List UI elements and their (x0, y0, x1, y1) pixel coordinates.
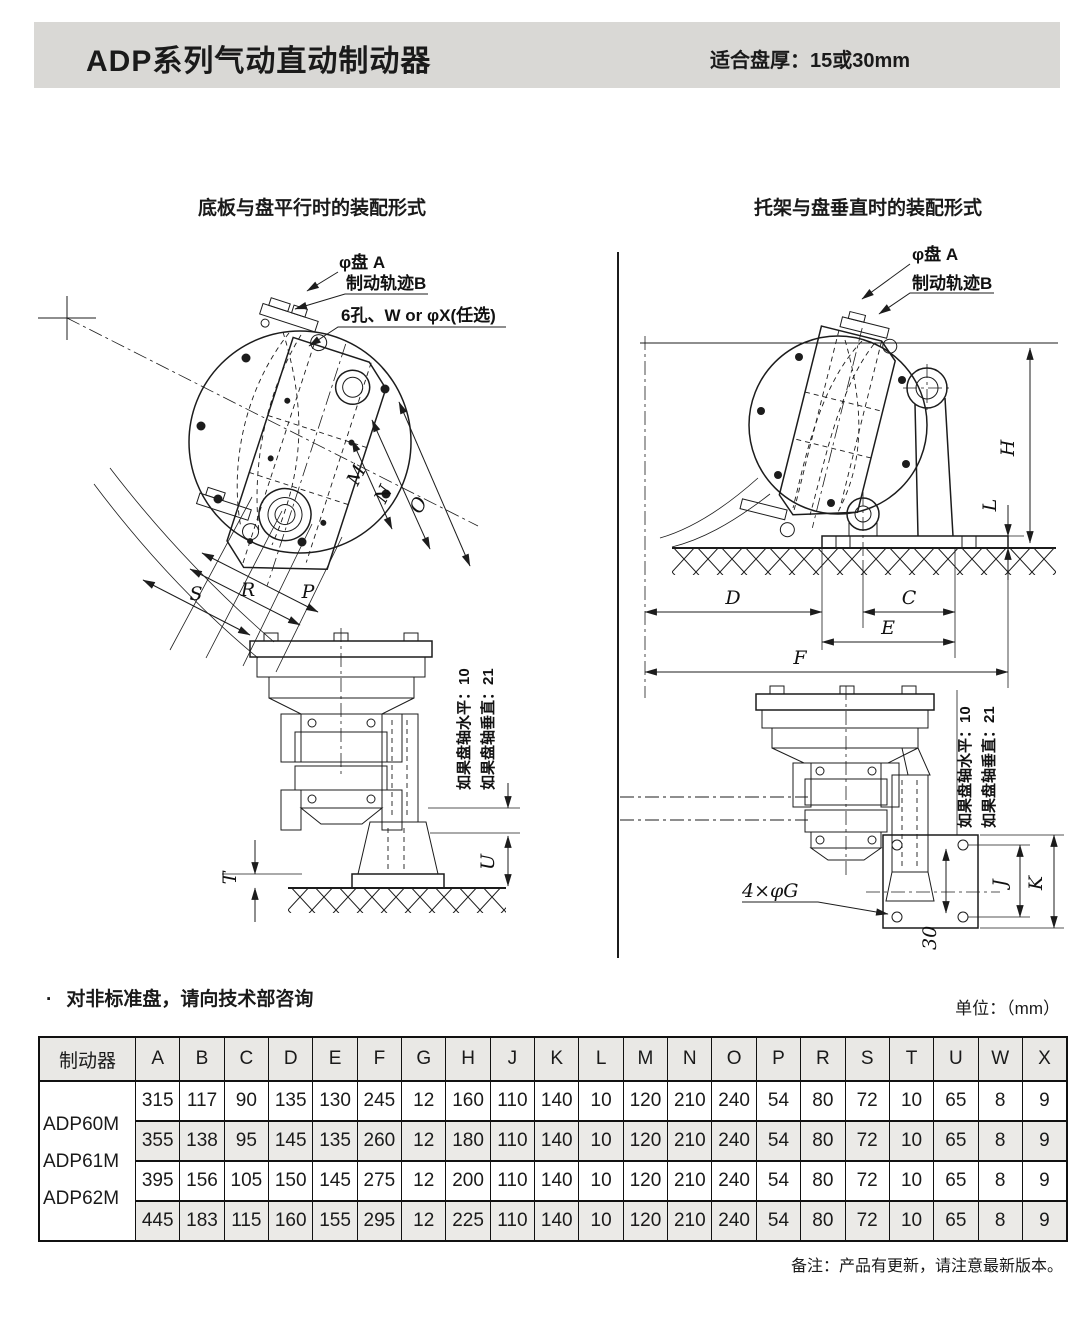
table-col-header: A (136, 1037, 180, 1081)
table-cell: 210 (668, 1201, 712, 1241)
note-axis-vertical-right: 如果盘轴垂直：21 (980, 706, 998, 828)
footer-note: 备注：产品有更新，请注意最新版本。 (791, 1252, 1063, 1276)
table-col-header: R (801, 1037, 845, 1081)
table-row: ADP60MADP61MADP62M3151179013513024512160… (39, 1081, 1067, 1121)
model-name: ADP60M (43, 1106, 135, 1143)
table-cell: 12 (402, 1121, 446, 1161)
table-row: 3951561051501452751220011014010120210240… (39, 1161, 1067, 1201)
table-cell: 160 (446, 1081, 490, 1121)
table-cell: 54 (756, 1121, 800, 1161)
dim-j: J (989, 878, 1011, 891)
table-cell: 180 (446, 1121, 490, 1161)
dim-l: L (979, 499, 1001, 513)
nonstandard-disc-remark: ·对非标准盘，请向技术部咨询 (46, 984, 313, 1011)
table-cell: 200 (446, 1161, 490, 1201)
dim-h: H (997, 439, 1019, 457)
table-row: 3551389514513526012180110140101202102405… (39, 1121, 1067, 1161)
table-cell: 150 (269, 1161, 313, 1201)
table-col-header: L (579, 1037, 623, 1081)
header-bar: ADP系列气动直动制动器 适合盘厚：15或30mm (34, 22, 1060, 88)
table-cell: 10 (889, 1201, 933, 1241)
left-side-view: T U 如果盘轴水平：10 如果盘轴垂直：21 (219, 628, 520, 922)
table-cell: 10 (889, 1081, 933, 1121)
dim-o: O (405, 493, 432, 517)
table-cell: 80 (801, 1161, 845, 1201)
table-cell: 65 (934, 1201, 978, 1241)
table-cell: 54 (756, 1201, 800, 1241)
table-cell: 110 (490, 1081, 534, 1121)
table-cell: 105 (224, 1161, 268, 1201)
table-col-header: T (889, 1037, 933, 1081)
dim-s: S (189, 583, 202, 605)
remark-text: 对非标准盘，请向技术部咨询 (66, 989, 313, 1010)
table-cell: 65 (934, 1161, 978, 1201)
table-cell: 10 (889, 1161, 933, 1201)
table-col-header: M (623, 1037, 667, 1081)
spec-value: 15或30mm (810, 50, 910, 72)
table-col-header: P (756, 1037, 800, 1081)
table-cell: 65 (934, 1081, 978, 1121)
dim-p: P (301, 581, 316, 603)
table-cell: 260 (357, 1121, 401, 1161)
table-col-header: H (446, 1037, 490, 1081)
table-cell: 120 (623, 1161, 667, 1201)
table-cell: 210 (668, 1081, 712, 1121)
table-col-header: D (269, 1037, 313, 1081)
table-cell: 12 (402, 1201, 446, 1241)
table-cell: 245 (357, 1081, 401, 1121)
table-col-header: X (1022, 1037, 1067, 1081)
table-cell: 10 (579, 1201, 623, 1241)
model-name: ADP62M (43, 1180, 135, 1217)
dim-d: D (724, 587, 740, 609)
table-header-row: 制动器ABCDEFGHJKLMNOPRSTUWX (39, 1037, 1067, 1081)
table-cell: 140 (535, 1201, 579, 1241)
table-col-header: C (224, 1037, 268, 1081)
table-cell: 240 (712, 1081, 756, 1121)
table-cell: 10 (579, 1161, 623, 1201)
table-cell: 8 (978, 1161, 1022, 1201)
callout-holes: 6孔、W or φX(任选) (341, 305, 496, 325)
table-cell: 9 (1022, 1081, 1067, 1121)
table-cell: 120 (623, 1121, 667, 1161)
table-cell: 445 (136, 1201, 180, 1241)
table-col-header: U (934, 1037, 978, 1081)
dim-n: N (370, 481, 398, 508)
dim-u: U (477, 853, 499, 870)
right-diagram-title: 托架与盘垂直时的装配形式 (708, 193, 1028, 220)
table-cell: 8 (978, 1081, 1022, 1121)
caliper-body-right (774, 318, 901, 537)
table-cell: 295 (357, 1201, 401, 1241)
table-cell: 65 (934, 1121, 978, 1161)
table-cell: 145 (269, 1121, 313, 1161)
table-cell: 9 (1022, 1121, 1067, 1161)
table-col-header: W (978, 1037, 1022, 1081)
table-cell: 155 (313, 1201, 357, 1241)
table-cell: 140 (535, 1081, 579, 1121)
table-col-header: 制动器 (39, 1037, 136, 1081)
table-cell: 80 (801, 1081, 845, 1121)
ground-hatch (288, 889, 506, 913)
table-cell: 10 (889, 1121, 933, 1161)
table-cell: 12 (402, 1081, 446, 1121)
table-cell: 135 (313, 1121, 357, 1161)
table-cell: 120 (623, 1201, 667, 1241)
dim-m: M (342, 461, 371, 490)
table-cell: 10 (579, 1081, 623, 1121)
table-cell: 54 (756, 1081, 800, 1121)
flange-plate (883, 835, 978, 928)
table-cell: 117 (180, 1081, 224, 1121)
table-cell: 90 (224, 1081, 268, 1121)
table-col-header: B (180, 1037, 224, 1081)
model-name: ADP61M (43, 1143, 135, 1180)
mounting-bracket (822, 364, 1008, 560)
table-cell: 72 (845, 1201, 889, 1241)
caliper-body (218, 328, 395, 602)
table-cell: 120 (623, 1081, 667, 1121)
left-plan-view: φ盘 A 制动轨迹B 6孔、W or φX(任选) M N O S R P (38, 252, 506, 672)
table-cell: 80 (801, 1121, 845, 1161)
technical-drawings: φ盘 A 制动轨迹B 6孔、W or φX(任选) M N O S R P (0, 225, 1091, 970)
table-cell: 225 (446, 1201, 490, 1241)
table-cell: 156 (180, 1161, 224, 1201)
table-cell: 395 (136, 1161, 180, 1201)
callout-brake-track: 制动轨迹B (346, 273, 426, 293)
callout-brake-track-right: 制动轨迹B (912, 273, 992, 293)
table-col-header: F (357, 1037, 401, 1081)
table-col-header: J (490, 1037, 534, 1081)
table-cell: 130 (313, 1081, 357, 1121)
table-cell: 80 (801, 1201, 845, 1241)
table-col-header: K (535, 1037, 579, 1081)
right-side-view: 4×φG 30 J K 如果盘轴水平：10 如果盘轴垂直：21 (620, 686, 1064, 950)
unit-label: 单位：（mm） (955, 994, 1060, 1019)
table-cell: 8 (978, 1121, 1022, 1161)
dim-f: F (792, 647, 807, 669)
table-cell: 72 (845, 1161, 889, 1201)
table-cell: 355 (136, 1121, 180, 1161)
dim-e: E (880, 617, 895, 639)
dim-r: R (240, 579, 255, 601)
model-cell: ADP60MADP61MADP62M (39, 1081, 136, 1241)
table-cell: 315 (136, 1081, 180, 1121)
table-cell: 145 (313, 1161, 357, 1201)
table-cell: 110 (490, 1161, 534, 1201)
table-cell: 275 (357, 1161, 401, 1201)
table-cell: 240 (712, 1161, 756, 1201)
dim-t: T (219, 870, 241, 884)
table-cell: 9 (1022, 1201, 1067, 1241)
spec-label: 适合盘厚： (710, 50, 810, 72)
table-cell: 8 (978, 1201, 1022, 1241)
right-elevation-view: φ盘 A 制动轨迹B H L D C E F (640, 244, 1058, 698)
callout-bolt-holes: 4×φG (741, 880, 799, 902)
table-col-header: N (668, 1037, 712, 1081)
table-col-header: E (313, 1037, 357, 1081)
callout-disc-a-right: φ盘 A (912, 244, 958, 264)
page-title: ADP系列气动直动制动器 (86, 36, 431, 80)
dim-k: K (1025, 874, 1047, 891)
table-col-header: O (712, 1037, 756, 1081)
table-cell: 95 (224, 1121, 268, 1161)
bottom-clamp-right (736, 499, 799, 538)
table-cell: 10 (579, 1121, 623, 1161)
table-cell: 240 (712, 1201, 756, 1241)
table-cell: 135 (269, 1081, 313, 1121)
table-cell: 72 (845, 1121, 889, 1161)
table-col-header: G (402, 1037, 446, 1081)
table-cell: 138 (180, 1121, 224, 1161)
table-cell: 110 (490, 1201, 534, 1241)
table-cell: 9 (1022, 1161, 1067, 1201)
dim-offset-30: 30 (919, 926, 941, 950)
note-axis-horizontal-right: 如果盘轴水平：10 (956, 706, 974, 828)
table-cell: 72 (845, 1081, 889, 1121)
table-cell: 140 (535, 1121, 579, 1161)
table-col-header: S (845, 1037, 889, 1081)
note-axis-horizontal: 如果盘轴水平：10 (455, 668, 473, 790)
left-diagram-title: 底板与盘平行时的装配形式 (152, 193, 472, 220)
table-cell: 140 (535, 1161, 579, 1201)
ground-hatch-right (672, 549, 1056, 575)
table-cell: 115 (224, 1201, 268, 1241)
table-cell: 240 (712, 1121, 756, 1161)
table-cell: 210 (668, 1121, 712, 1161)
table-cell: 54 (756, 1161, 800, 1201)
disc-outline (189, 331, 411, 553)
note-axis-vertical: 如果盘轴垂直：21 (479, 668, 497, 790)
callout-disc-a: φ盘 A (339, 252, 385, 272)
table-cell: 210 (668, 1161, 712, 1201)
table-row: 4451831151601552951222511014010120210240… (39, 1201, 1067, 1241)
disc-thickness-spec: 适合盘厚：15或30mm (710, 44, 910, 73)
top-clamp (254, 296, 335, 353)
remark-bullet: · (46, 989, 52, 1010)
dimension-table: 制动器ABCDEFGHJKLMNOPRSTUWX ADP60MADP61MADP… (38, 1036, 1068, 1242)
table-cell: 160 (269, 1201, 313, 1241)
dim-c: C (902, 587, 917, 609)
table-cell: 183 (180, 1201, 224, 1241)
table-cell: 110 (490, 1121, 534, 1161)
table-cell: 12 (402, 1161, 446, 1201)
